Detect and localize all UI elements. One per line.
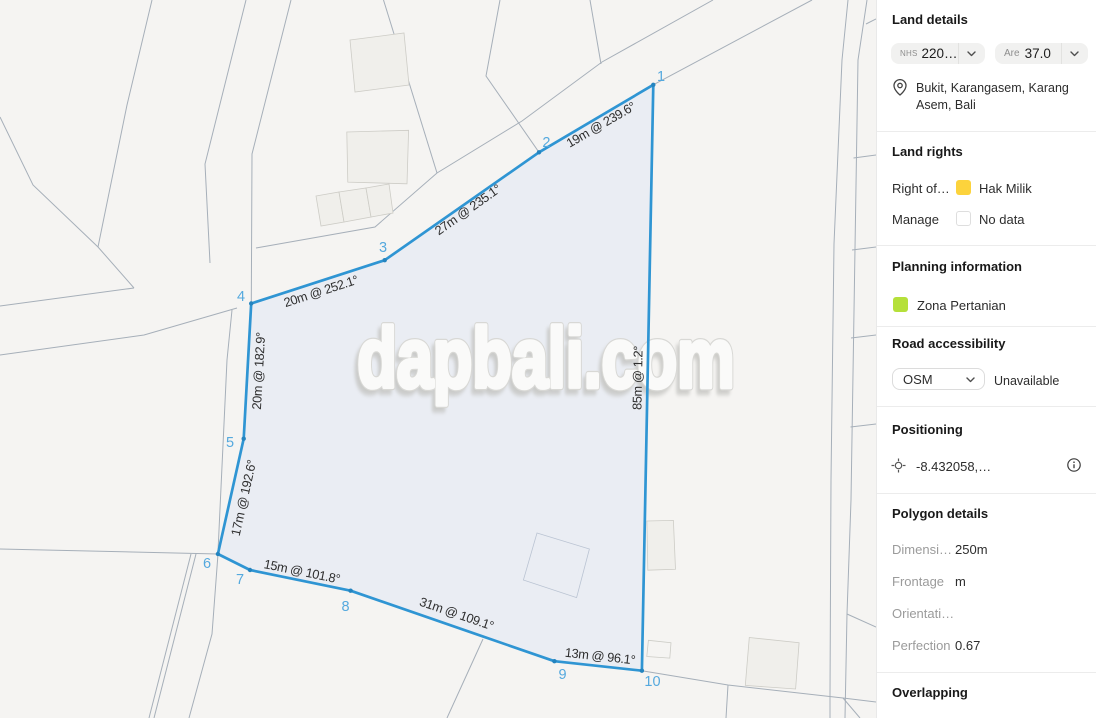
svg-text:dapbali.com: dapbali.com <box>357 311 734 405</box>
svg-text:3: 3 <box>379 240 387 256</box>
svg-text:7: 7 <box>236 572 244 588</box>
svg-text:2: 2 <box>542 135 550 151</box>
svg-text:8: 8 <box>342 599 350 615</box>
svg-text:5: 5 <box>226 435 234 451</box>
svg-text:4: 4 <box>237 289 245 305</box>
svg-text:1: 1 <box>657 69 665 85</box>
svg-text:10: 10 <box>644 674 660 690</box>
svg-text:85m @ 1.2°: 85m @ 1.2° <box>629 346 645 410</box>
svg-text:9: 9 <box>558 667 566 683</box>
svg-text:6: 6 <box>203 556 211 572</box>
